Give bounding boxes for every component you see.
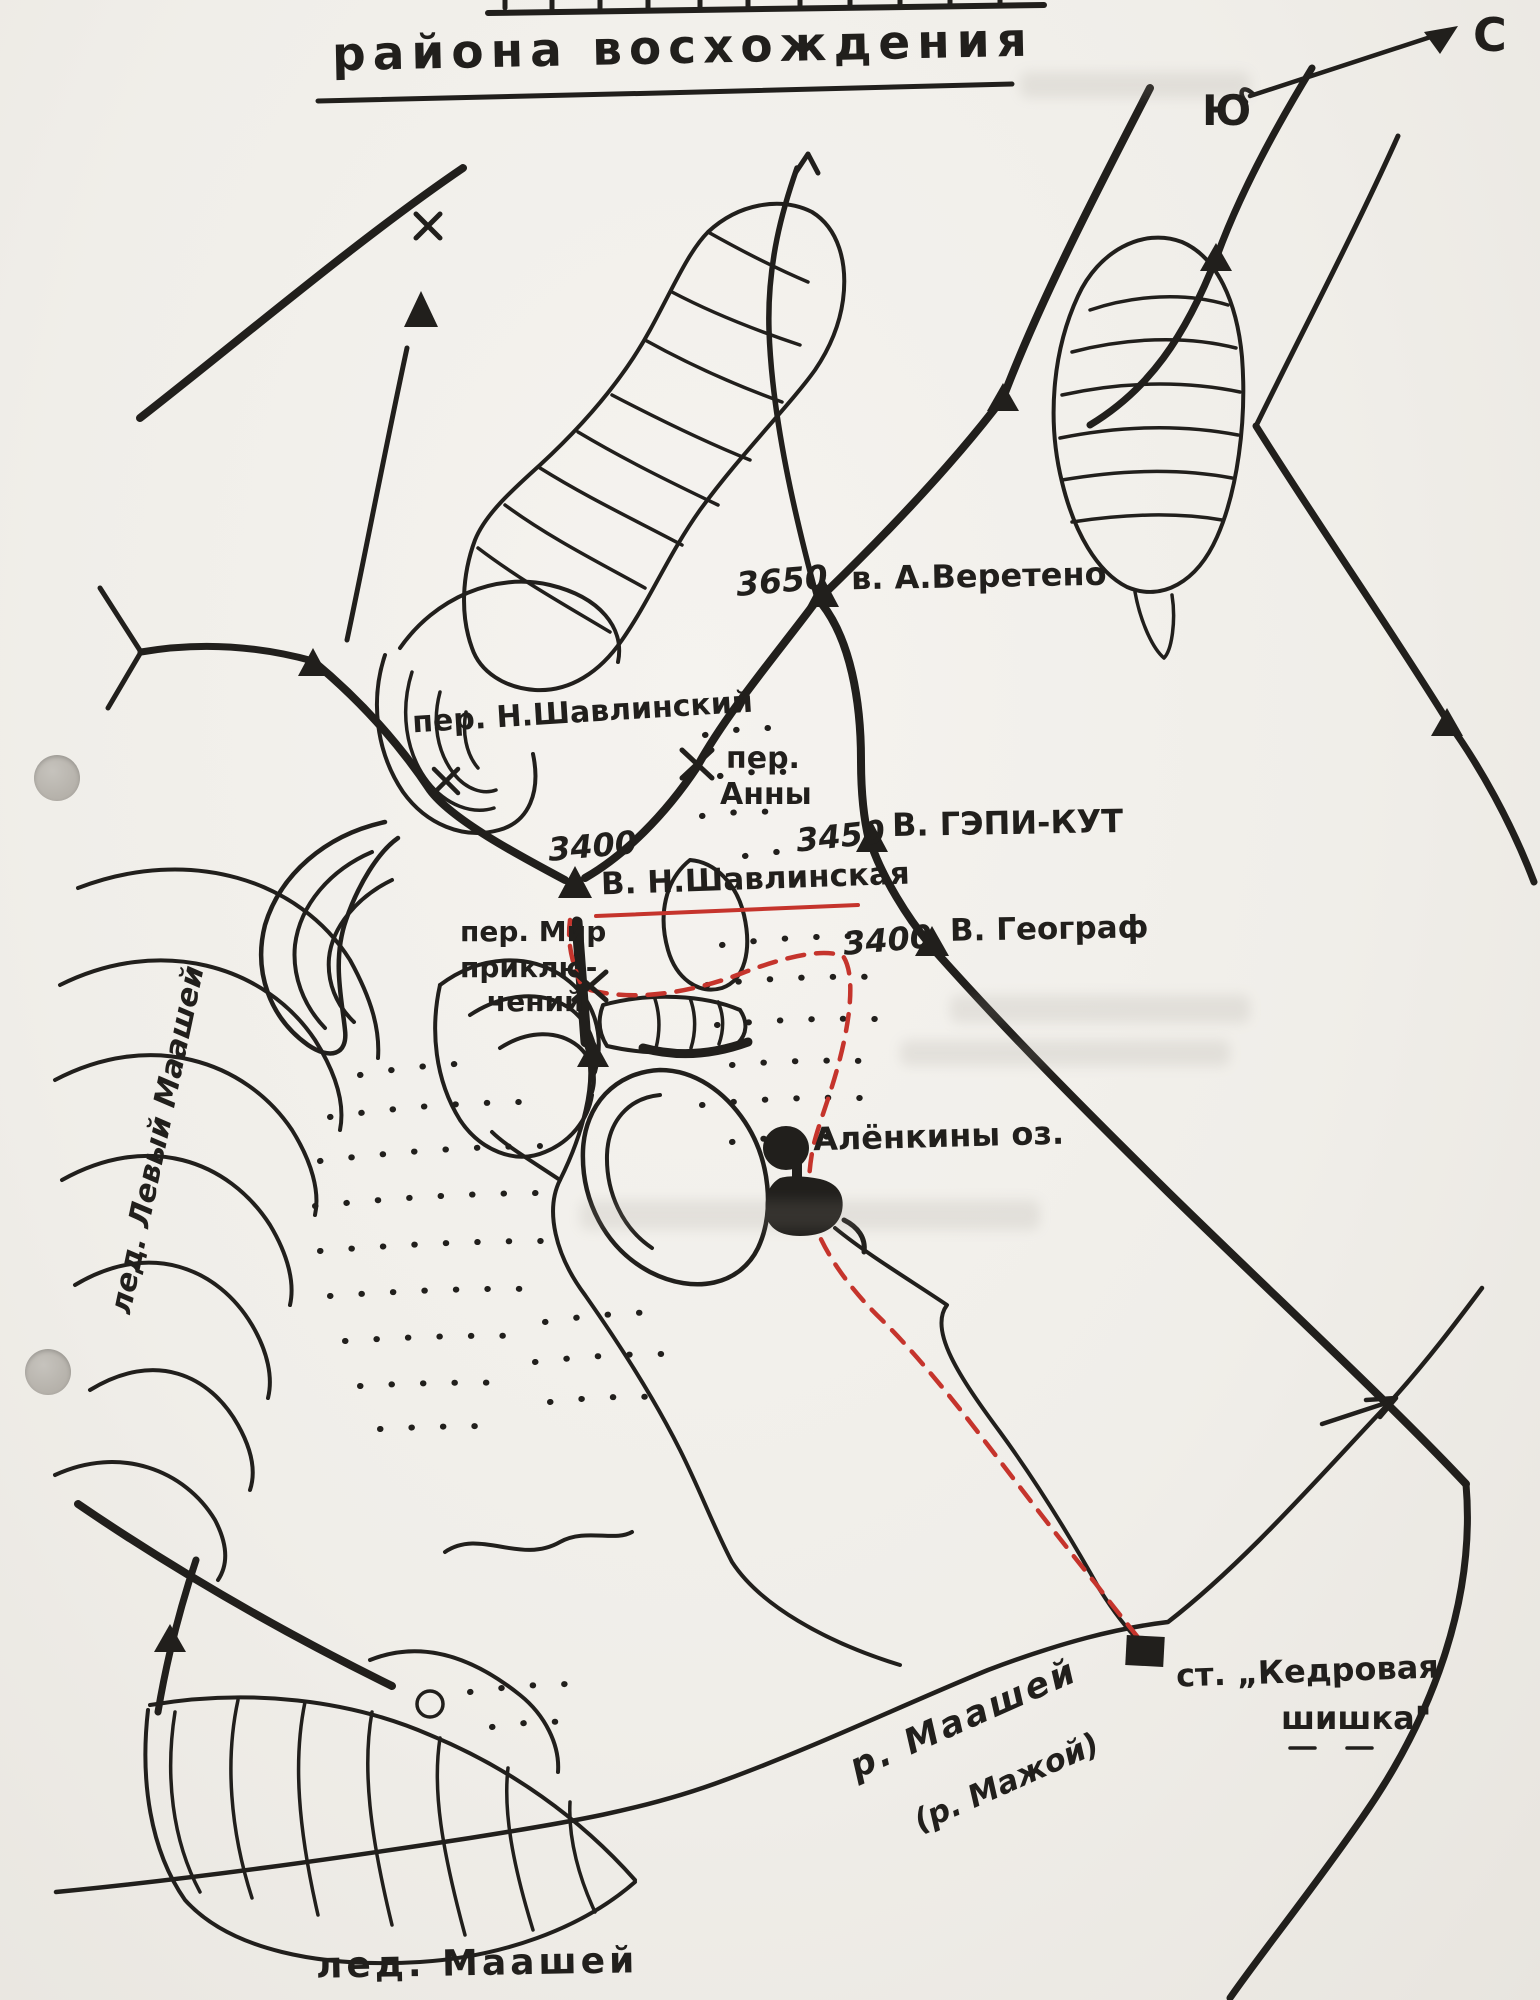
- punch-hole: [34, 755, 80, 801]
- bleed-through-smudge: [580, 1200, 1040, 1230]
- pass-anny-label-line2: Анны: [720, 780, 812, 810]
- map-page: района восхождения Ю С 3650 в. А.Веретен…: [0, 0, 1540, 2000]
- peak-geograf-label: В. Географ: [950, 912, 1149, 946]
- punch-hole: [25, 1349, 71, 1395]
- pass-mir-label-line1: пер. Мир: [460, 918, 606, 946]
- bleed-through-smudge: [900, 1040, 1230, 1066]
- compass-south-label: Ю: [1202, 90, 1251, 132]
- pass-anny-label-line1: пер.: [726, 744, 800, 774]
- station-square: [1125, 1635, 1165, 1667]
- peak-markers: [154, 243, 1463, 1652]
- glacier-maashey-label: лед. Маашей: [316, 1943, 639, 1985]
- compass-north-label: С: [1473, 12, 1507, 58]
- bleed-through-smudge: [950, 995, 1250, 1023]
- map-title: района восхождения: [332, 17, 1035, 79]
- peak-gepikut-label: В. ГЭПИ-КУТ: [892, 805, 1124, 841]
- compass-arrow: [1242, 26, 1458, 102]
- title-underline: [318, 84, 1012, 101]
- cropped-title-fragment: [488, 0, 1044, 13]
- peak-geograf-elevation: 3400: [842, 920, 934, 960]
- glacier-top-center: [464, 204, 844, 690]
- pass-mir-label-line2: приклю-: [460, 954, 597, 982]
- pass-mir-label-line3: чений: [487, 988, 584, 1016]
- peak-vereteno-elevation: 3650: [735, 560, 829, 601]
- peak-gepikut-elevation: 3450: [795, 815, 887, 856]
- glacier-top-right: [1054, 238, 1244, 658]
- peak-vereteno-label: в. А.Веретено: [851, 558, 1107, 594]
- station-label-line1: ст. „Кедровая: [1176, 1650, 1440, 1691]
- route-solid-segment: [596, 905, 858, 916]
- peak-shavlinskaya-elevation: 3400: [547, 826, 639, 866]
- glacier-maashey-bottom: [145, 1697, 635, 1963]
- lakes-label: Алёнкины оз.: [813, 1117, 1065, 1156]
- station-label-line2: шишка": [1281, 1702, 1431, 1734]
